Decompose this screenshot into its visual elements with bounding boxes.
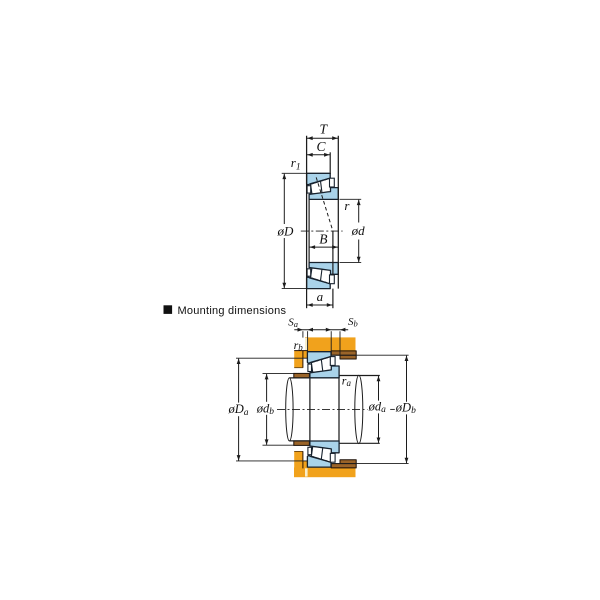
svg-text:Sb: Sb bbox=[348, 316, 358, 329]
svg-text:B: B bbox=[319, 231, 327, 246]
svg-text:a: a bbox=[317, 289, 324, 304]
svg-text:Mounting dimensions: Mounting dimensions bbox=[178, 305, 287, 317]
svg-text:C: C bbox=[317, 139, 327, 154]
svg-text:øD: øD bbox=[277, 224, 295, 239]
svg-text:Sa: Sa bbox=[288, 317, 298, 330]
svg-text:ød: ød bbox=[351, 223, 366, 238]
